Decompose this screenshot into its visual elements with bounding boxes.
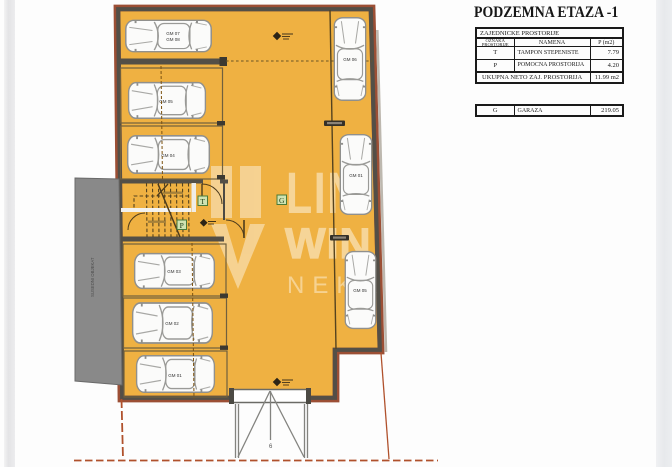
- svg-text:GM 04: GM 04: [161, 153, 175, 158]
- svg-text:T: T: [200, 197, 205, 206]
- svg-text:GM 01: GM 01: [168, 373, 182, 378]
- svg-text:GM 05: GM 05: [353, 288, 367, 293]
- svg-text:GM 06: GM 06: [343, 57, 357, 62]
- svg-text:P: P: [180, 221, 184, 230]
- svg-text:GM 01: GM 01: [349, 173, 363, 178]
- svg-text:GM 08: GM 08: [166, 37, 180, 42]
- svg-text:GM 07: GM 07: [166, 31, 180, 36]
- svg-text:SUSEDNI OBJEKAT: SUSEDNI OBJEKAT: [90, 257, 95, 297]
- svg-text:GM 03: GM 03: [167, 269, 181, 274]
- svg-text:GM 02: GM 02: [165, 321, 179, 326]
- svg-text:6: 6: [269, 444, 273, 450]
- svg-text:G: G: [279, 196, 285, 205]
